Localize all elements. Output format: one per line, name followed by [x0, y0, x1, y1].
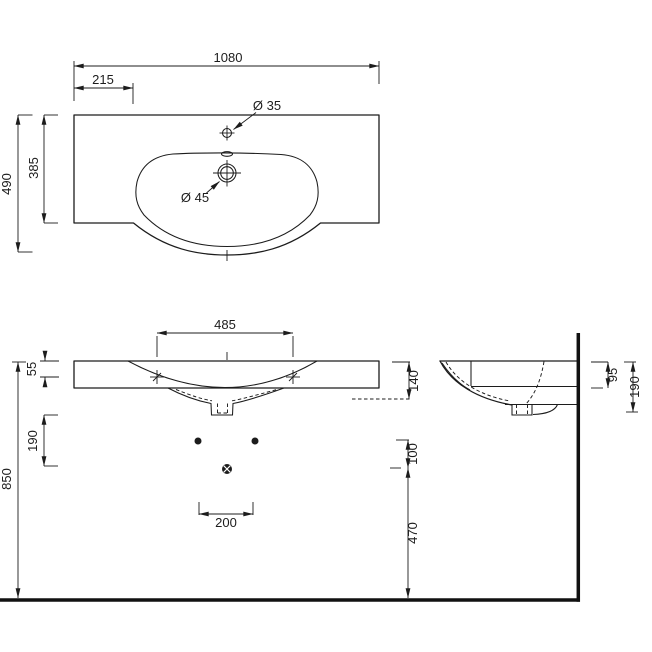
countertop-outline [74, 115, 379, 255]
svg-text:490: 490 [0, 173, 14, 195]
dim-side-deck-front: 95 [591, 362, 620, 388]
waste-neck-hidden [218, 404, 228, 414]
dim-bowl-depth: 140 [352, 362, 421, 399]
supply-hole-left [195, 438, 202, 445]
dim-basin-to-trap: 190 [25, 415, 58, 466]
svg-text:850: 850 [0, 468, 14, 490]
tap-hole-symbol [220, 126, 235, 141]
dim-side-deck-overall: 190 [624, 362, 642, 412]
svg-text:470: 470 [405, 522, 420, 544]
svg-text:190: 190 [25, 430, 40, 452]
washbasin-technical-drawing: Ø 35 Ø 45 1080 215 490 385 [0, 0, 652, 652]
svg-text:55: 55 [24, 362, 39, 376]
svg-text:215: 215 [92, 72, 114, 87]
dim-overall-depth: 490 [0, 115, 33, 252]
dim-overall-width: 1080 [74, 50, 379, 101]
svg-text:485: 485 [214, 317, 236, 332]
dim-trap-offset: 100 [390, 440, 420, 468]
svg-text:190: 190 [627, 376, 642, 398]
svg-text:1080: 1080 [214, 50, 243, 65]
side-waste-neck-hidden [517, 405, 528, 415]
deck-front-outline [74, 361, 379, 388]
waste-hole-label: Ø 45 [181, 190, 209, 205]
technical-drawing-sheet: Ø 35 Ø 45 1080 215 490 385 [0, 0, 652, 652]
dim-ledge-width: 215 [74, 72, 133, 104]
bowl-underside-outline [168, 388, 284, 415]
dim-deck-depth: 385 [26, 115, 58, 223]
tap-hole-label: Ø 35 [253, 98, 281, 113]
fixing-hole-marker-right [286, 370, 300, 384]
dim-trap-to-floor: 470 [405, 468, 420, 598]
side-outlet-curve [533, 405, 558, 415]
supply-hole-right [252, 438, 259, 445]
svg-text:140: 140 [406, 370, 421, 392]
side-view: 95 190 [440, 361, 642, 415]
dim-fixing-centres: 485 [157, 317, 293, 357]
side-waste-neck [512, 405, 532, 416]
svg-text:95: 95 [605, 368, 620, 382]
svg-text:100: 100 [405, 443, 420, 465]
svg-text:385: 385 [26, 157, 41, 179]
dim-waste-centres: 200 [199, 502, 253, 530]
waste-outlet-symbol [222, 464, 232, 474]
side-back-bowl-hidden [526, 362, 544, 405]
bowl-front-curve [128, 361, 317, 388]
side-outer-profile [440, 361, 512, 405]
side-rim-edge [442, 363, 470, 390]
dim-deck-to-fixing: 55 [24, 352, 59, 386]
front-view: 485 55 190 850 140 [0, 317, 421, 598]
dim-rim-height: 850 [0, 362, 26, 598]
svg-text:200: 200 [215, 515, 237, 530]
top-view: Ø 35 Ø 45 1080 215 490 385 [0, 50, 379, 261]
waste-hole-symbol [213, 160, 241, 187]
waste-hole-leader [207, 182, 220, 194]
